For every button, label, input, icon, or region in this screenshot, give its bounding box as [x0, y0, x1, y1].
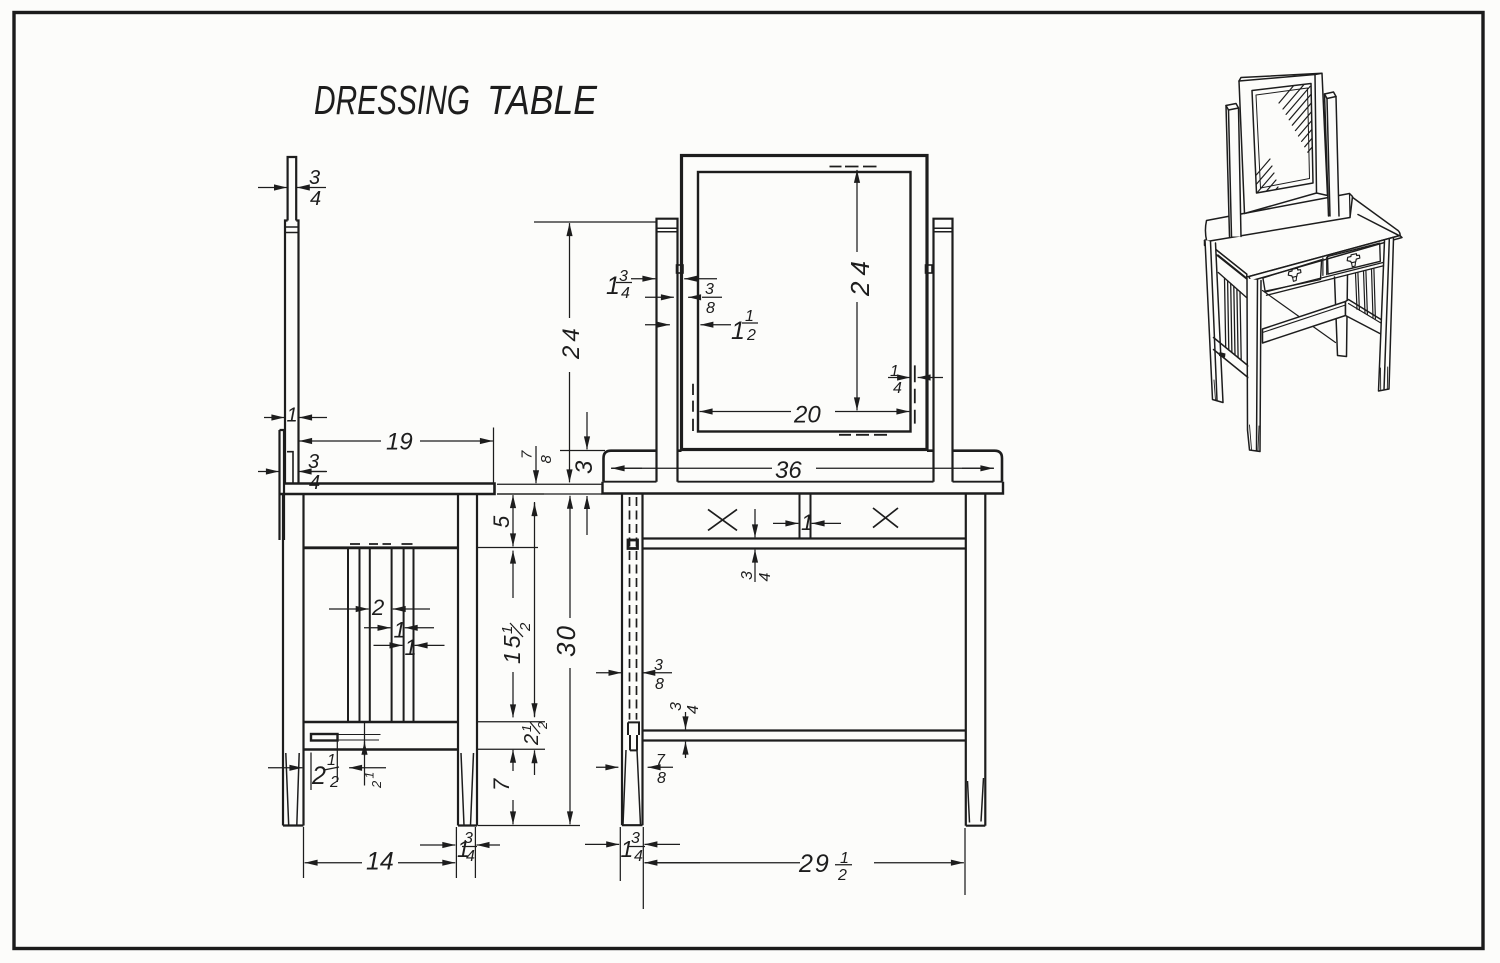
- svg-text:4: 4: [621, 285, 630, 302]
- svg-text:7: 7: [519, 450, 536, 459]
- svg-text:1: 1: [519, 725, 534, 732]
- svg-text:3: 3: [739, 571, 756, 580]
- svg-text:4: 4: [466, 848, 475, 865]
- svg-text:4: 4: [310, 188, 321, 210]
- svg-text:2: 2: [517, 622, 534, 632]
- svg-text:2: 2: [837, 867, 847, 884]
- svg-text:8: 8: [706, 300, 715, 317]
- svg-text:2: 2: [746, 327, 756, 344]
- svg-text:30: 30: [551, 624, 581, 657]
- svg-text:7: 7: [489, 778, 514, 791]
- svg-text:4: 4: [309, 472, 320, 494]
- svg-text:24: 24: [845, 255, 875, 297]
- svg-text:1: 1: [731, 317, 745, 345]
- svg-text:20: 20: [793, 402, 821, 429]
- svg-text:3: 3: [654, 657, 663, 674]
- svg-text:3: 3: [631, 830, 640, 847]
- svg-text:14: 14: [366, 848, 394, 876]
- svg-text:3: 3: [308, 451, 319, 473]
- svg-text:36: 36: [775, 457, 802, 484]
- svg-text:3: 3: [464, 830, 473, 847]
- svg-text:3: 3: [571, 460, 598, 474]
- svg-text:15: 15: [499, 632, 525, 664]
- svg-text:19: 19: [386, 429, 413, 456]
- svg-text:4: 4: [685, 705, 702, 714]
- svg-text:1: 1: [606, 272, 620, 300]
- svg-text:24: 24: [558, 324, 585, 360]
- svg-text:8: 8: [538, 455, 555, 464]
- svg-text:8: 8: [655, 676, 664, 693]
- svg-text:2: 2: [371, 595, 384, 620]
- svg-text:7: 7: [656, 752, 666, 769]
- svg-text:1: 1: [327, 752, 336, 769]
- svg-text:2: 2: [329, 774, 339, 791]
- svg-text:3: 3: [668, 702, 685, 711]
- svg-text:2: 2: [521, 734, 543, 746]
- svg-text:1: 1: [287, 405, 298, 427]
- svg-text:3: 3: [309, 167, 320, 189]
- svg-text:2: 2: [311, 762, 326, 790]
- svg-text:4: 4: [757, 573, 774, 582]
- svg-text:1: 1: [363, 772, 377, 779]
- svg-text:3: 3: [705, 281, 714, 298]
- svg-text:1: 1: [405, 635, 417, 660]
- svg-text:2: 2: [535, 721, 550, 730]
- svg-text:DRESSING: DRESSING: [314, 77, 470, 123]
- svg-text:8: 8: [657, 770, 666, 787]
- svg-text:2: 2: [369, 780, 384, 789]
- svg-text:TABLE: TABLE: [487, 77, 598, 123]
- svg-text:1: 1: [801, 510, 813, 535]
- svg-text:29: 29: [798, 850, 831, 878]
- svg-text:4: 4: [634, 848, 643, 865]
- svg-text:5: 5: [489, 515, 514, 528]
- svg-text:4: 4: [893, 380, 902, 397]
